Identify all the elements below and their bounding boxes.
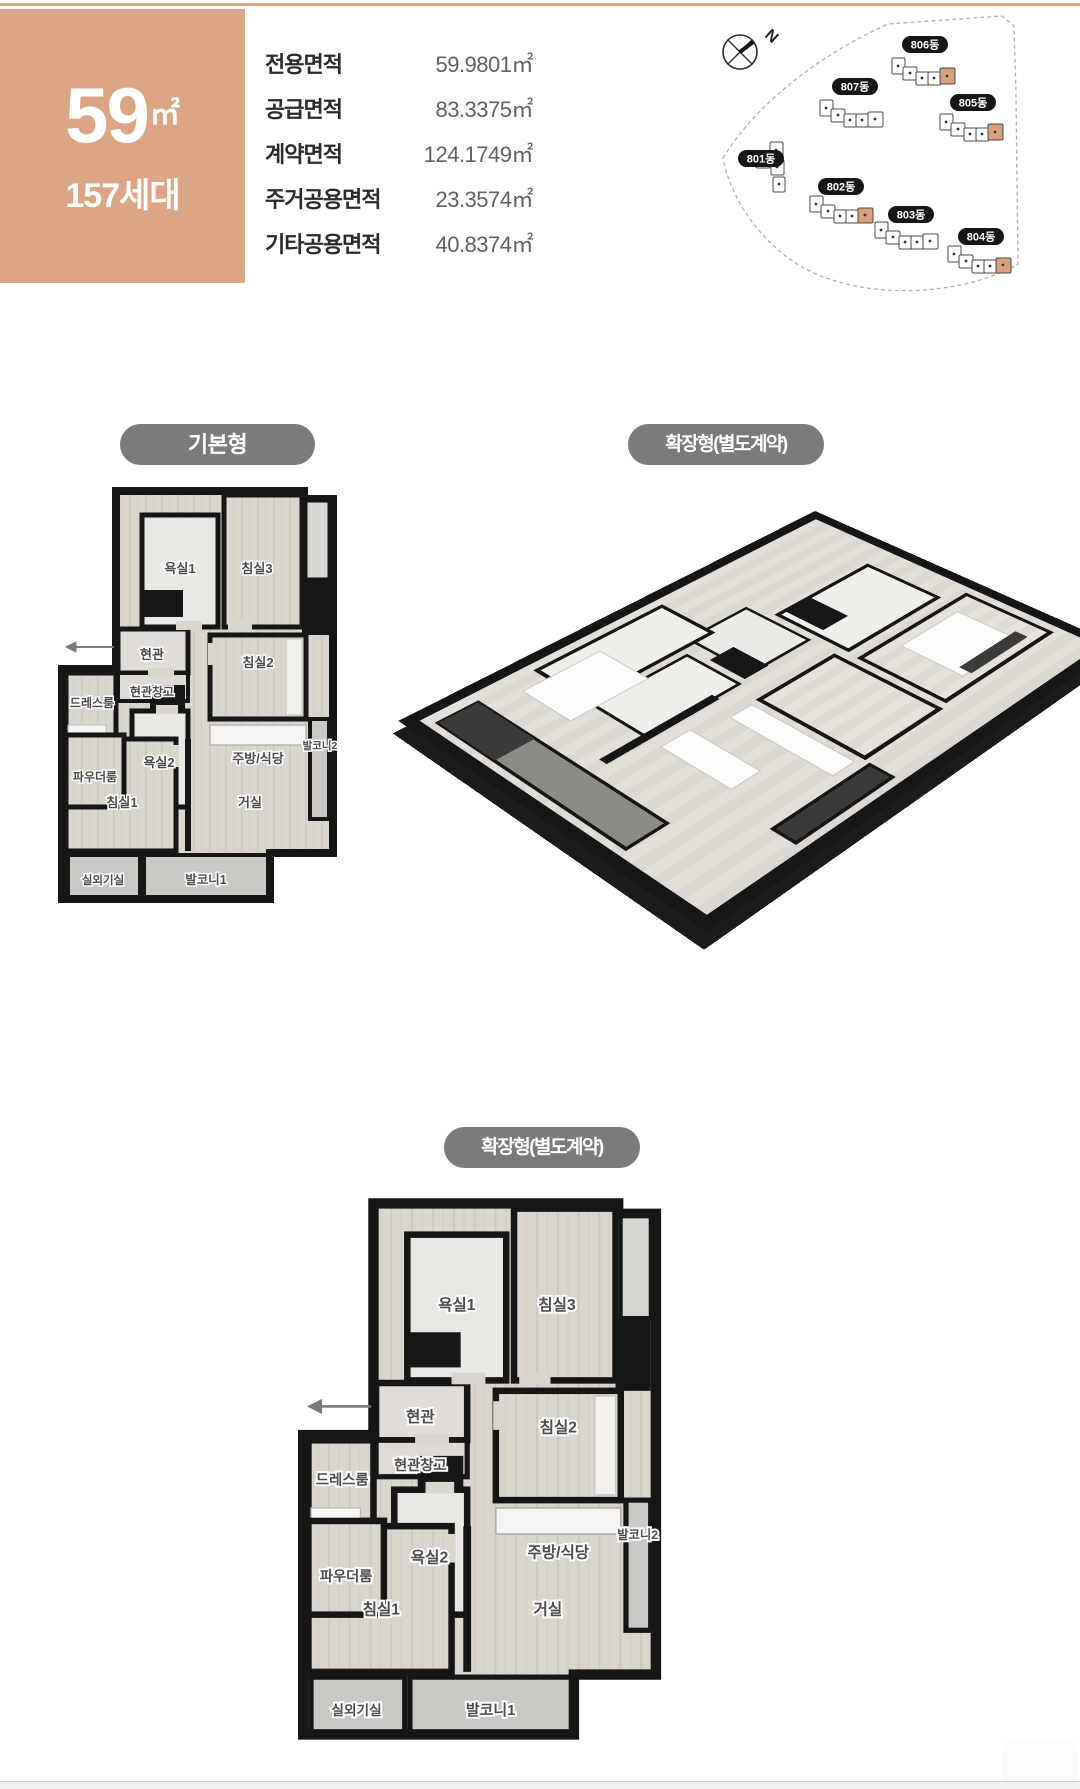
label-entrance-storage: 현관창고 [130,684,174,699]
footer-divider [0,1781,1080,1789]
unit-size-number: 59 [65,71,148,159]
iso-sofa [660,729,762,790]
svg-text:806동: 806동 [911,39,939,52]
area-label: 주거공용면적 [265,182,380,214]
area-row: 공급면적 83.3375㎡ [265,92,533,124]
label-bed2: 침실2 [242,655,273,670]
unit-size-unit: ㎡ [150,98,180,131]
label-bed2: 침실2 [540,1417,578,1436]
label-bed3: 침실3 [538,1295,576,1314]
area-table: 전용면적 59.9801㎡ 공급면적 83.3375㎡ 계약면적 124.174… [265,47,533,272]
label-dress-room: 드레스룸 [316,1472,369,1489]
area-value: 40.8374㎡ [435,227,533,259]
page: 59㎡ 157세대 전용면적 59.9801㎡ 공급면적 83.3375㎡ 계약… [0,0,1080,1789]
area-row: 기타공용면적 40.8374㎡ [265,227,533,259]
svg-text:805동: 805동 [959,97,987,110]
building-label-803: 803동 [888,206,934,223]
badge-basic-type: 기본형 [120,424,315,465]
building-label-806: 806동 [902,36,948,53]
svg-text:804동: 804동 [967,231,995,244]
wall-mass [302,579,329,635]
iso-floorplan [398,511,1080,932]
room-balcony2 [310,719,329,819]
building-label-807: 807동 [832,78,878,95]
label-ac-room: 실외기실 [331,1702,381,1718]
label-bed1: 침실1 [106,795,137,810]
building-label-801: 801동 [738,150,784,167]
label-balcony2: 발코니2 [617,1527,658,1542]
north-label: N [761,26,781,46]
expanded-floorplan: 욕실1 침실3 현관 현관창고 드레스룸 파우더룸 욕실2 침실2 주방/식당 … [298,1198,665,1745]
building-cluster-803 [875,222,938,249]
building-cluster-802 [810,196,873,223]
top-accent-line [0,3,1080,6]
svg-text:807동: 807동 [841,81,869,94]
scroll-top-button[interactable] [1002,1742,1078,1784]
label-kitchen: 주방/식당 [527,1543,589,1561]
balcony-niche [306,501,329,579]
entry-arrow-icon [66,642,114,652]
building-cluster-806 [892,58,955,85]
label-bath2: 욕실2 [411,1549,449,1567]
label-balcony1: 발코니1 [466,1702,516,1719]
label-entrance: 현관 [406,1407,435,1426]
bed2-closet [595,1396,616,1495]
wall-mass [616,1318,651,1391]
entry-arrow-icon [308,1400,370,1413]
label-kitchen: 주방/식당 [232,751,283,766]
label-bed3: 침실3 [241,561,272,576]
label-bath1: 욕실1 [164,561,195,576]
svg-text:803동: 803동 [897,209,925,222]
svg-text:802동: 802동 [827,181,855,194]
room-balcony2 [626,1500,651,1630]
building-cluster-805 [940,114,1003,141]
building-cluster-807 [820,100,883,127]
svg-text:801동: 801동 [747,153,775,166]
room-powder-overlay [308,1521,383,1615]
label-powder-room: 파우더룸 [73,769,117,784]
area-label: 기타공용면적 [265,227,380,259]
label-entrance: 현관 [140,647,164,662]
area-value: 83.3375㎡ [435,92,533,124]
label-living: 거실 [238,795,262,810]
room-bed3 [514,1209,616,1381]
building-label-802: 802동 [818,178,864,195]
area-value: 124.1749㎡ [424,137,533,169]
area-row: 계약면적 124.1749㎡ [265,137,533,169]
unit-households: 157세대 [65,168,179,217]
kitchen-counter [210,725,306,745]
area-row: 주거공용면적 23.3574㎡ [265,182,533,214]
label-dress-room: 드레스룸 [70,695,114,710]
iso-floorplan-stage [440,448,1080,910]
label-balcony1: 발코니1 [185,872,227,887]
building-label-805: 805동 [950,94,996,111]
wall-mass [143,590,183,617]
area-value: 23.3574㎡ [435,182,533,214]
badge-expanded-type-bottom: 확장형(별도계약) [444,1127,640,1168]
unit-summary-box: 59㎡ 157세대 [0,9,245,283]
bed2-closet [286,639,302,715]
building-cluster-804 [948,246,1011,273]
label-ac-room: 실외기실 [82,873,124,887]
site-map: N 801동 802동 [620,10,1080,306]
label-living: 거실 [534,1601,563,1619]
area-label: 전용면적 [265,47,342,79]
building-label-804: 804동 [958,228,1004,245]
kitchen-counter [496,1508,621,1534]
unit-size: 59㎡ [65,76,180,154]
compass-icon: N [723,26,781,69]
balcony-niche [621,1216,651,1318]
area-row: 전용면적 59.9801㎡ [265,47,533,79]
area-value: 59.9801㎡ [435,47,533,79]
label-balcony2: 발코니2 [303,739,338,752]
label-bed1: 침실1 [363,1600,401,1619]
label-bath2: 욕실2 [143,755,174,770]
label-powder-room: 파우더룸 [320,1568,373,1585]
wall-mass [409,1332,461,1367]
label-entrance-storage: 현관창고 [394,1457,447,1474]
label-bath1: 욕실1 [438,1296,476,1314]
area-label: 공급면적 [265,92,342,124]
basic-floorplan: 욕실1 침실3 현관 현관창고 드레스룸 파우더룸 욕실2 침실2 주방/식당 … [58,487,340,907]
area-label: 계약면적 [265,137,342,169]
